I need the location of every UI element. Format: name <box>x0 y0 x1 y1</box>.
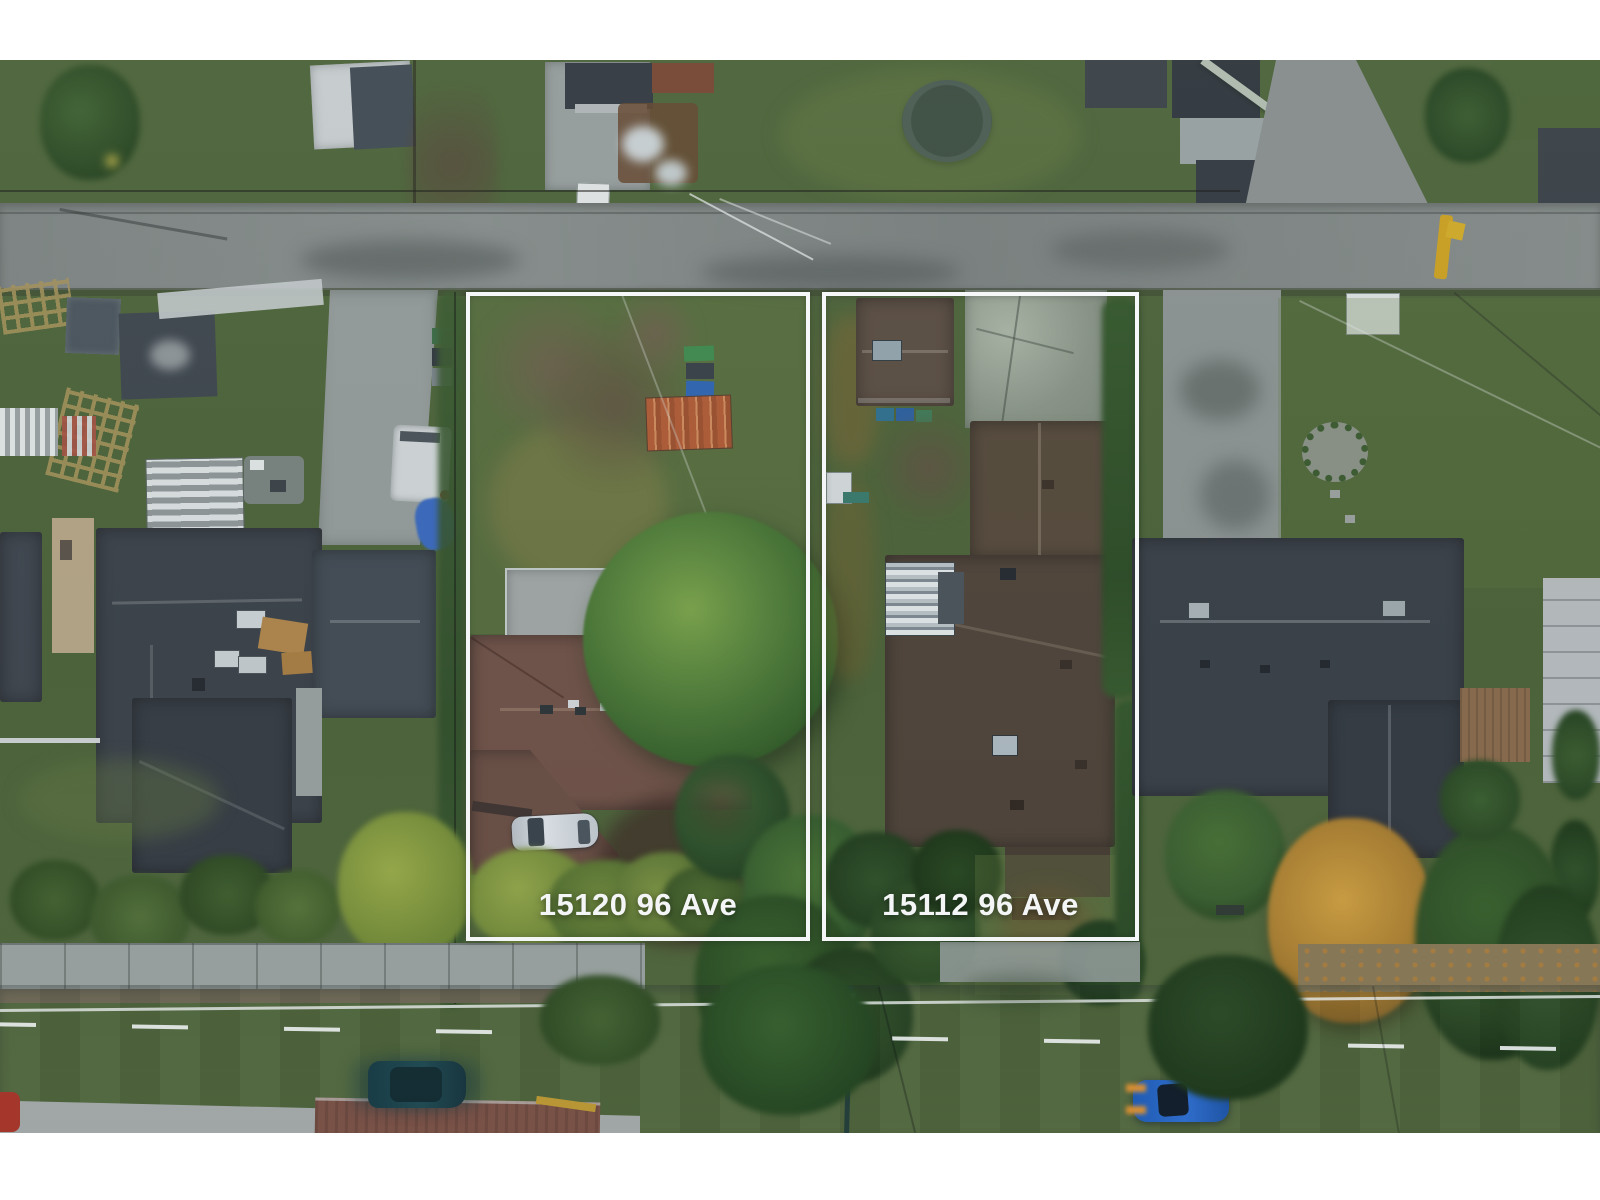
garden-ring <box>1302 422 1368 482</box>
pavement-crack <box>0 212 1600 214</box>
bush <box>1552 710 1600 800</box>
street-tree-canopy <box>540 975 660 1065</box>
concrete-stain <box>1180 360 1260 420</box>
tree-shadow <box>960 975 1080 1005</box>
fallen-leaves-spot <box>106 155 118 167</box>
white-tarp <box>655 160 687 186</box>
wet-patch <box>700 255 960 290</box>
lattice-rack <box>0 277 75 335</box>
bush-cluster <box>40 65 140 180</box>
bottom-white-margin <box>0 1133 1600 1200</box>
street-tree-canopy <box>700 965 875 1115</box>
headlight-streak <box>1126 1084 1146 1092</box>
white-tarp <box>622 126 664 162</box>
skylight <box>238 656 267 674</box>
roof-vent <box>1260 665 1270 673</box>
red-car-partial <box>0 1092 20 1132</box>
roof-vent <box>1320 660 1330 668</box>
plywood-sheet <box>281 651 312 675</box>
shed-tarp <box>150 340 190 370</box>
roof-ridge <box>330 620 420 623</box>
skylight <box>1382 600 1406 617</box>
yellow-green-bush <box>338 812 473 960</box>
wet-patch <box>1050 230 1230 270</box>
wood-deck <box>1460 688 1530 762</box>
corrugated-panels-red <box>62 416 96 456</box>
skylight <box>214 650 240 668</box>
rust-shed-roof <box>652 63 714 93</box>
clutter-item <box>250 460 264 470</box>
bush-cluster <box>1425 68 1510 163</box>
suv-roof <box>390 1067 442 1102</box>
shed-dark-panel <box>350 64 416 149</box>
roof-vent <box>1200 660 1210 668</box>
roof-ridge <box>1160 620 1430 623</box>
lot-outline-15120: 15120 96 Ave <box>466 292 810 941</box>
lot-outline-15112: 15112 96 Ave <box>822 292 1139 941</box>
headlight-streak <box>1126 1106 1146 1114</box>
street-tree-canopy <box>1148 955 1308 1100</box>
white-fence <box>0 738 100 743</box>
bush <box>10 860 100 940</box>
trailer-window <box>400 431 440 443</box>
bush <box>1440 760 1520 840</box>
stepping-stone <box>1330 490 1340 498</box>
small-dark-bench <box>1216 905 1244 915</box>
neighbor-roof-wing <box>312 550 436 718</box>
chimney <box>192 678 205 691</box>
walkway <box>296 688 322 796</box>
corrugated-panels <box>0 408 58 456</box>
wet-patch <box>300 240 520 280</box>
lawn-shading <box>20 760 220 840</box>
carport-striped-roof <box>145 457 244 535</box>
skylight <box>1188 602 1210 619</box>
stepping-stone <box>1345 515 1355 523</box>
neighbor-roof <box>1085 60 1167 108</box>
bush <box>255 870 340 945</box>
conifer-tree <box>1165 790 1285 920</box>
tan-wall <box>52 518 94 653</box>
fence-line <box>0 190 1240 192</box>
concrete-stain <box>1200 460 1270 530</box>
wall-window <box>60 540 72 560</box>
aerial-photo: 15120 96 Ave 15112 96 Ave <box>0 60 1600 1133</box>
garden-shed <box>65 297 121 355</box>
screenshot-page: 15120 96 Ave 15112 96 Ave <box>0 0 1600 1200</box>
lot-label-15112: 15112 96 Ave <box>826 887 1135 923</box>
lawn-shading <box>780 70 1080 200</box>
yellow-sign <box>1445 220 1465 240</box>
side-street <box>1240 60 1440 212</box>
clutter-item <box>270 480 286 492</box>
left-edge-roof <box>0 532 42 702</box>
top-white-margin <box>0 0 1600 60</box>
lot-label-15120: 15120 96 Ave <box>470 887 806 923</box>
